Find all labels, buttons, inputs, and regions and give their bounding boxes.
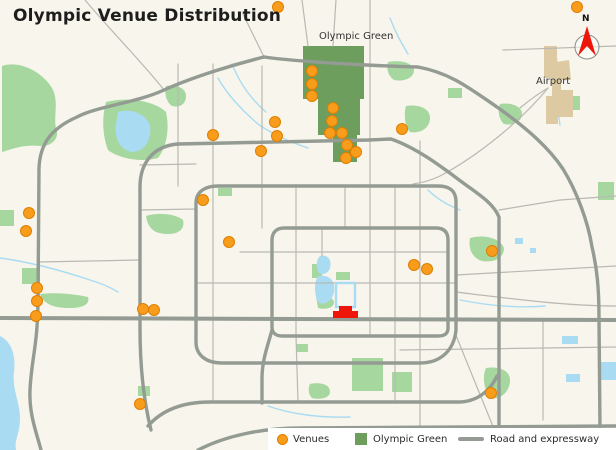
venue-dot [486, 388, 497, 399]
venue-dot [24, 208, 35, 219]
venue-dot [342, 140, 353, 151]
venue-dot [198, 195, 209, 206]
venue-dot [572, 2, 583, 13]
changan-avenue-road [0, 318, 616, 320]
legend: Venues Olympic Green Road and expressway [268, 428, 616, 450]
legend-item-venues: Venues [277, 428, 329, 450]
venue-dot [135, 399, 146, 410]
venue-dot [224, 237, 235, 248]
venue-dot [307, 91, 318, 102]
venue-dot [341, 153, 352, 164]
forbidden-city-moat [336, 283, 355, 307]
venue-dot [256, 146, 267, 157]
venue-dot [397, 124, 408, 135]
legend-venues-label: Venues [293, 434, 329, 445]
venue-dot [328, 103, 339, 114]
venue-dot [272, 131, 283, 142]
venue-dot [138, 304, 149, 315]
venue-dot [307, 79, 318, 90]
venue-dot [351, 147, 362, 158]
venue-dot [208, 130, 219, 141]
compass-n-label: N [582, 14, 590, 24]
venue-dot [307, 66, 318, 77]
venue-dot [409, 260, 420, 271]
legend-olympic-green-label: Olympic Green [373, 434, 447, 445]
venue-dot [337, 128, 348, 139]
compass-north-icon [575, 26, 599, 59]
venue-dot [149, 305, 160, 316]
venue-dot [31, 311, 42, 322]
venue-dot [327, 116, 338, 127]
venue-dot [487, 246, 498, 257]
map-layers [0, 0, 616, 450]
legend-item-road: Road and expressway [458, 428, 599, 450]
legend-item-olympic-green: Olympic Green [355, 428, 447, 450]
olympic-green-label: Olympic Green [319, 31, 393, 42]
venue-dot [32, 283, 43, 294]
map-canvas: Olympic Venue Distribution Olympic Green… [0, 0, 616, 450]
page-title: Olympic Venue Distribution [13, 6, 281, 26]
venue-dot [325, 128, 336, 139]
venue-dot-icon [277, 434, 288, 445]
venue-dot [422, 264, 433, 275]
legend-road-label: Road and expressway [490, 434, 599, 445]
venue-dot [32, 296, 43, 307]
olympic-green-square-icon [355, 433, 367, 445]
airport-label: Airport [536, 76, 570, 87]
venue-dot [270, 117, 281, 128]
road-line-icon [458, 437, 484, 441]
venue-dot [21, 226, 32, 237]
